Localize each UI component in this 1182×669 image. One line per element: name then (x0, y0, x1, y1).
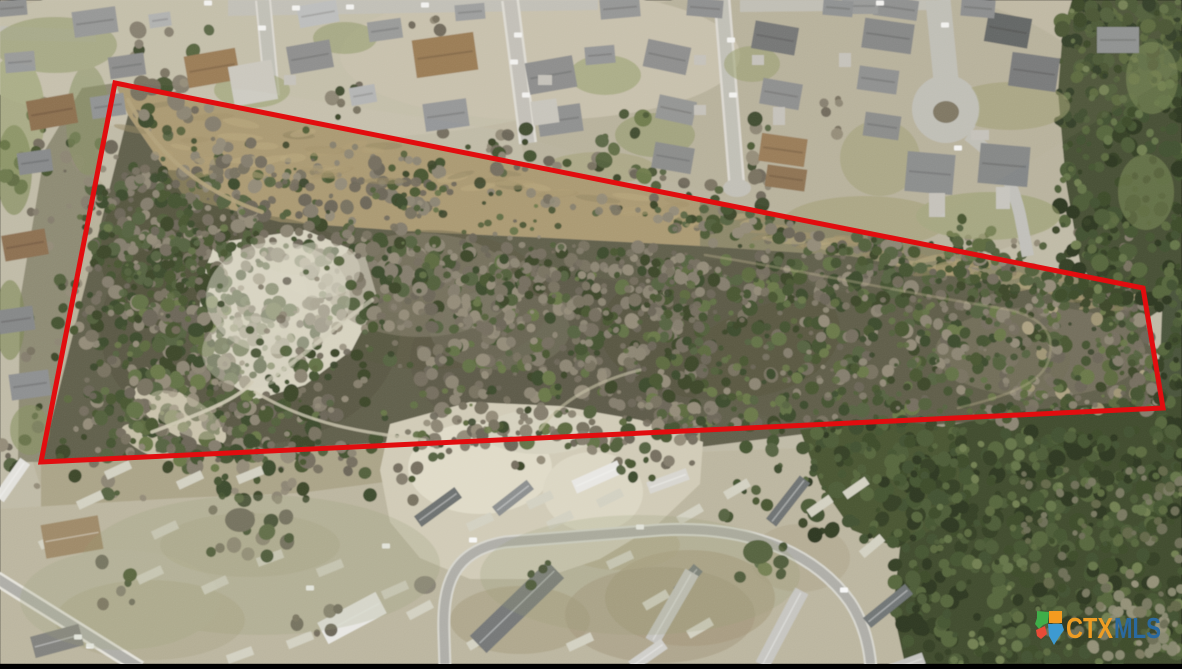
svg-text:CTX: CTX (1066, 613, 1114, 645)
svg-text:MLS: MLS (1114, 613, 1161, 645)
